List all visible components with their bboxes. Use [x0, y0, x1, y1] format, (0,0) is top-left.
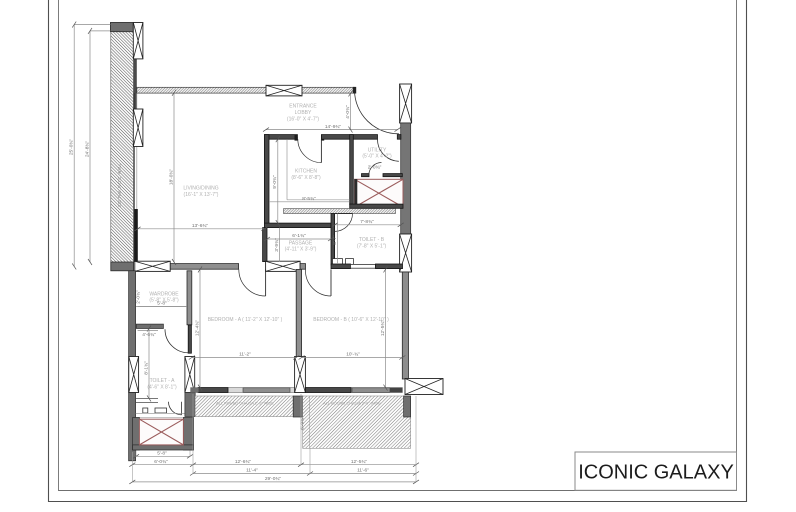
svg-text:24'-8¾": 24'-8¾" [84, 141, 90, 158]
svg-text:14'-9¾": 14'-9¾" [325, 124, 342, 130]
svg-text:4'-6¾": 4'-6¾" [142, 332, 156, 338]
svg-text:(16'-0" X 4'-7"): (16'-0" X 4'-7") [287, 117, 319, 123]
svg-text:18'-0¾": 18'-0¾" [168, 169, 174, 186]
svg-text:8'-1¾": 8'-1¾" [143, 361, 149, 375]
svg-text:12'-5¾": 12'-5¾" [351, 459, 368, 465]
svg-text:(7'-8" X 5'-1"): (7'-8" X 5'-1") [357, 244, 387, 250]
svg-text:LOBBY: LOBBY [295, 110, 312, 116]
svg-text:12'-6¾": 12'-6¾" [235, 459, 252, 465]
svg-text:6'-0¾": 6'-0¾" [154, 459, 168, 465]
svg-text:6'-9¾": 6'-9¾" [300, 416, 306, 430]
svg-text:25'-0¾": 25'-0¾" [69, 139, 75, 156]
svg-text:KITCHEN: KITCHEN [295, 169, 317, 175]
svg-text:(5'-0" X 4'-2"): (5'-0" X 4'-2") [362, 154, 392, 160]
svg-text:ALL ROUND CHAJJA 2'-0" WIDE: ALL ROUND CHAJJA 2'-0" WIDE [323, 401, 381, 406]
svg-text:(4'-6" X 8'-1"): (4'-6" X 8'-1") [147, 385, 177, 391]
svg-text:TOILET - A: TOILET - A [150, 378, 175, 384]
svg-text:2'-0¾": 2'-0¾" [136, 290, 142, 304]
svg-text:TOILET - B: TOILET - B [359, 237, 385, 243]
svg-text:3'-9¾": 3'-9¾" [274, 238, 280, 252]
svg-text:(16'-1" X 13'-7"): (16'-1" X 13'-7") [184, 192, 219, 198]
svg-text:7'-8¾": 7'-8¾" [360, 219, 374, 225]
svg-text:ENTRANCE: ENTRANCE [289, 104, 317, 110]
svg-text:10'-¾": 10'-¾" [346, 352, 360, 358]
svg-text:(8'-6" X 8'-8"): (8'-6" X 8'-8") [291, 175, 321, 181]
svg-text:11'-4": 11'-4" [246, 468, 258, 474]
svg-text:ICONIC GALAXY: ICONIC GALAXY [578, 462, 734, 484]
svg-text:(4'-11" X 3'-9"): (4'-11" X 3'-9") [285, 247, 317, 253]
svg-text:8'-5¾": 8'-5¾" [302, 196, 316, 202]
svg-text:4'-0¾": 4'-0¾" [345, 105, 351, 119]
svg-text:11'-6": 11'-6" [357, 468, 369, 474]
svg-text:BEDROOM - A ( 11'-2" X 12'-10": BEDROOM - A ( 11'-2" X 12'-10" ) [208, 317, 283, 323]
svg-text:2'-0¾": 2'-0¾" [368, 165, 382, 171]
svg-text:5'-8": 5'-8" [157, 451, 167, 457]
svg-text:9'-0¾": 9'-0¾" [272, 175, 278, 189]
svg-text:ALL ROUND CHAJJA 2'-0" WIDE: ALL ROUND CHAJJA 2'-0" WIDE [216, 401, 274, 406]
svg-text:13'-6¾": 13'-6¾" [192, 223, 209, 229]
svg-text:230 THK. R.C.C. WALL: 230 THK. R.C.C. WALL [117, 162, 122, 206]
svg-text:8'-7": 8'-7" [332, 235, 338, 245]
svg-text:29'-0¾": 29'-0¾" [265, 476, 282, 482]
svg-text:12'-5¾": 12'-5¾" [380, 320, 386, 337]
svg-text:LIVING/DINING: LIVING/DINING [183, 186, 218, 192]
svg-text:5'-8": 5'-8" [157, 301, 167, 307]
svg-text:12'-4¾": 12'-4¾" [194, 320, 200, 337]
svg-text:11'-2": 11'-2" [239, 352, 251, 358]
svg-text:BEDROOM - B ( 10'-6" X 12'-10": BEDROOM - B ( 10'-6" X 12'-10" ) [313, 317, 389, 323]
svg-text:6'-1¾": 6'-1¾" [292, 233, 306, 239]
